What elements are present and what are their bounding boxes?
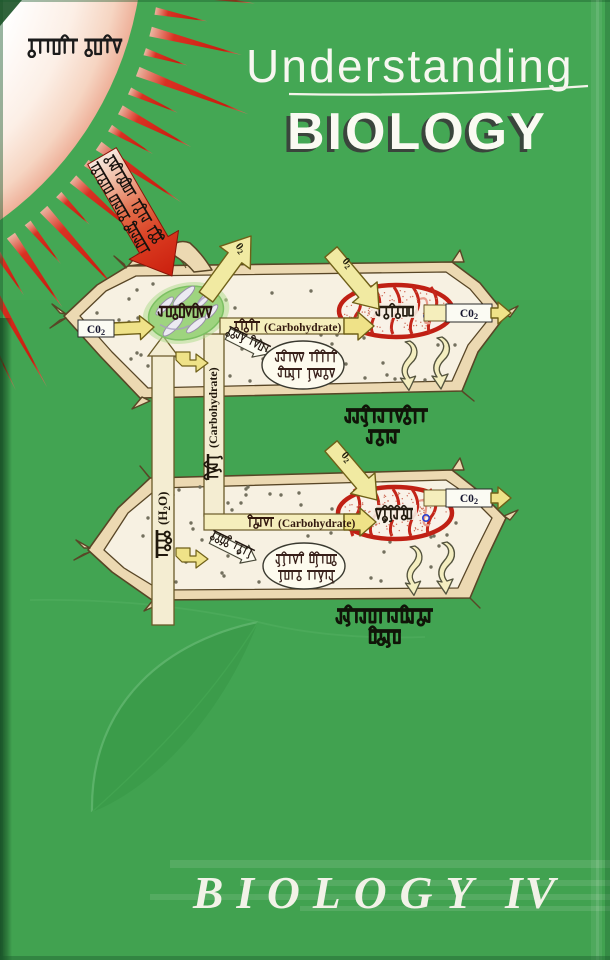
- svg-text:IV: IV: [504, 867, 559, 918]
- svg-text:(Carbohydrate): (Carbohydrate): [264, 322, 341, 334]
- svg-text:Understanding: Understanding: [246, 40, 574, 92]
- svg-text:(Carbohydrate): (Carbohydrate): [206, 367, 220, 448]
- svg-text:BIOLOGY: BIOLOGY: [192, 867, 486, 918]
- svg-text:BIOLOGY: BIOLOGY: [287, 103, 548, 161]
- svg-text:(Carbohydrate): (Carbohydrate): [278, 518, 355, 530]
